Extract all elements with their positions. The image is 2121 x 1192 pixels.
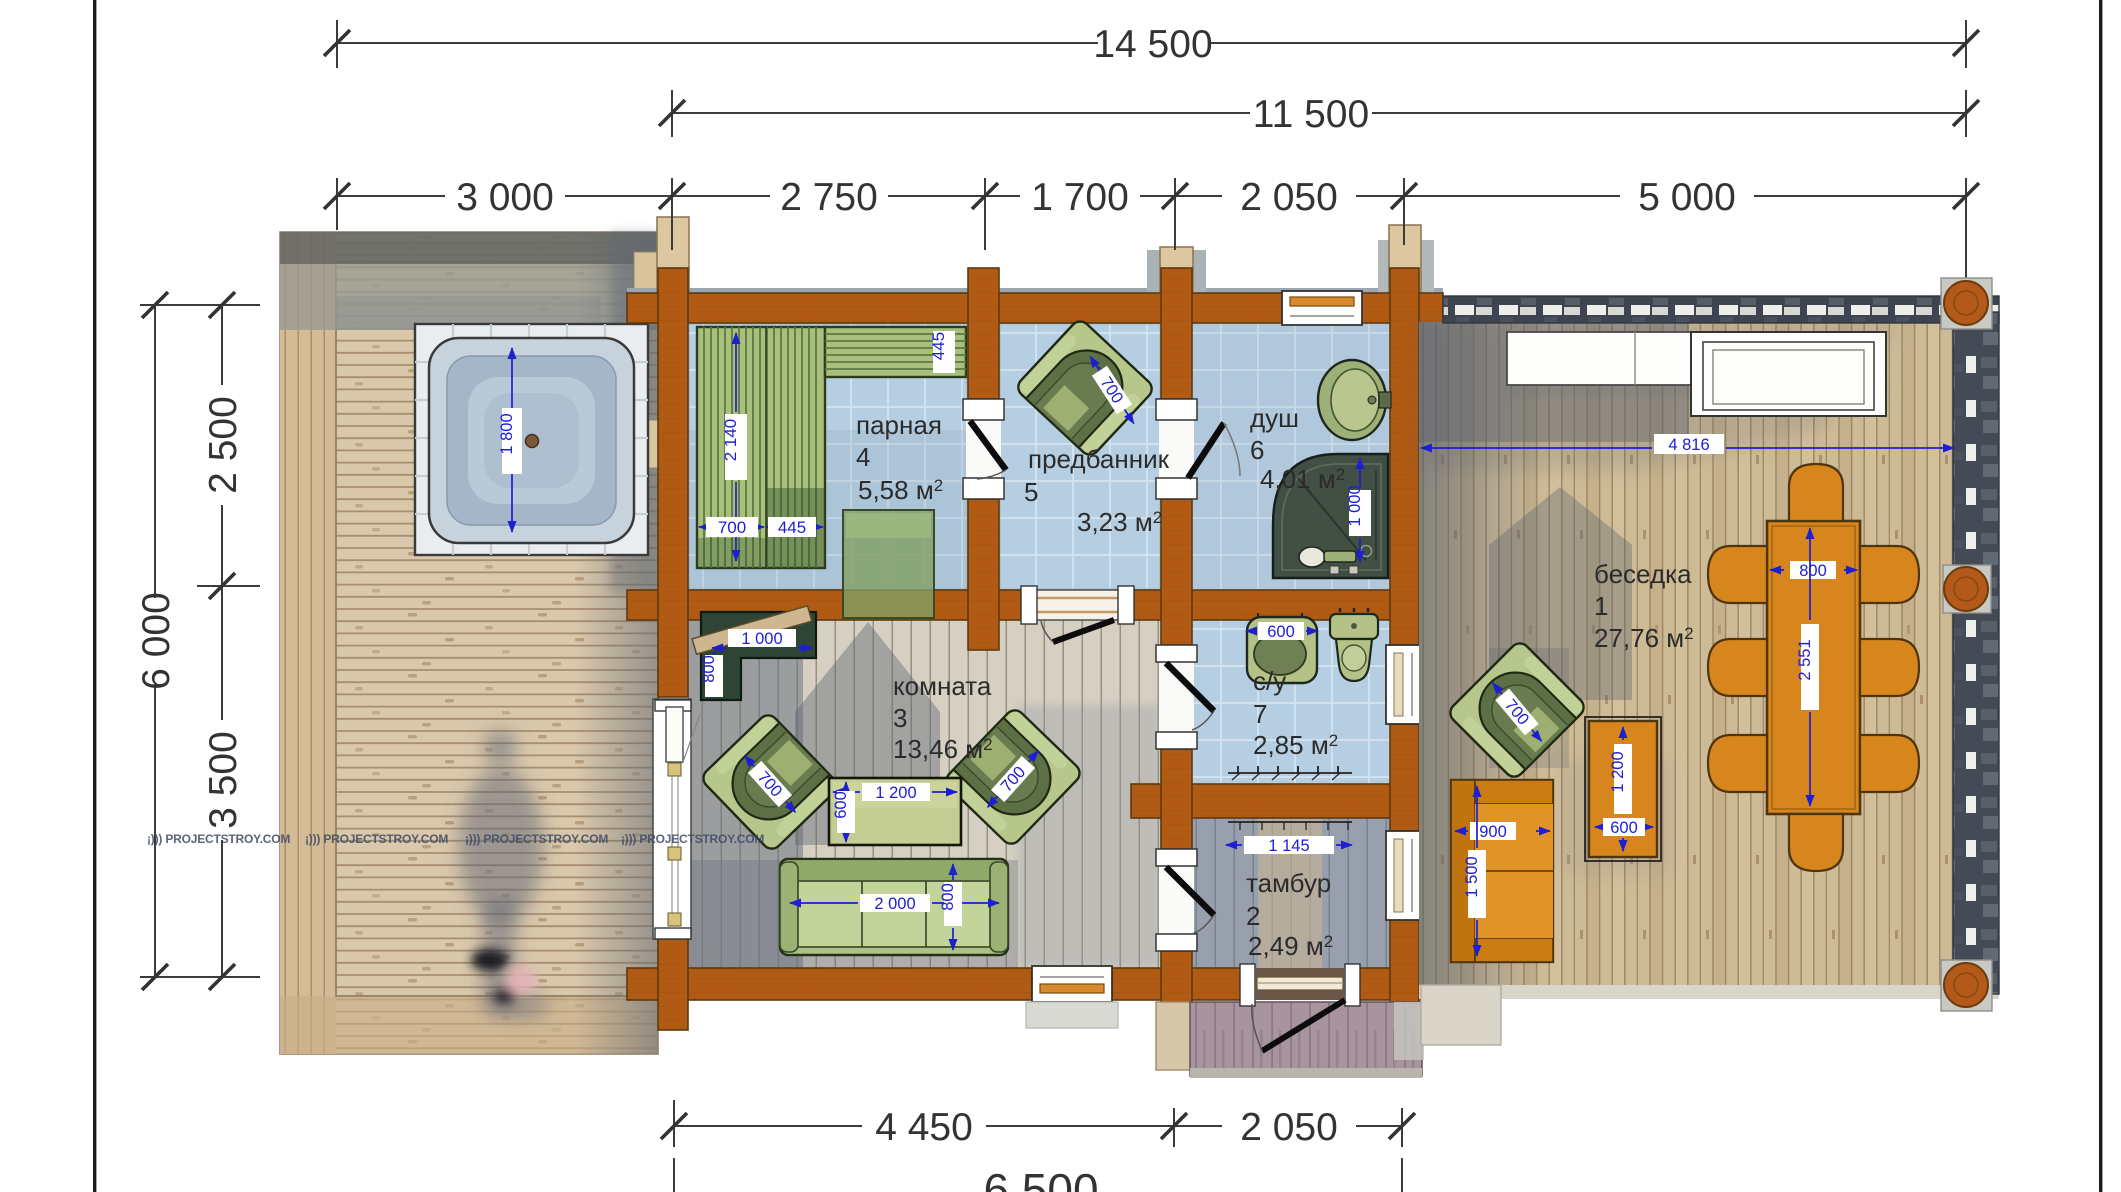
svg-text:800: 800 [939,883,957,911]
svg-text:27,76 м2: 27,76 м2 [1594,623,1694,653]
svg-text:2,85 м2: 2,85 м2 [1253,730,1338,760]
svg-text:4 816: 4 816 [1668,436,1709,454]
svg-text:6: 6 [1250,435,1264,465]
svg-text:13,46 м2: 13,46 м2 [893,734,993,764]
svg-text:5 000: 5 000 [1638,176,1736,219]
svg-text:комната: комната [893,671,992,701]
svg-text:1 145: 1 145 [1268,837,1309,855]
svg-text:4,01 м2: 4,01 м2 [1260,464,1345,494]
svg-text:1 200: 1 200 [1609,751,1627,792]
svg-text:предбанник: предбанник [1028,444,1170,474]
svg-text:5: 5 [1024,477,1038,507]
svg-text:2 551: 2 551 [1796,639,1814,680]
svg-text:тамбур: тамбур [1246,868,1331,898]
svg-text:беседка: беседка [1594,559,1692,589]
svg-text:1 700: 1 700 [1031,176,1129,219]
svg-text:2 000: 2 000 [874,895,915,913]
svg-text:¡))) PROJECTSTROY.COM: ¡))) PROJECTSTROY.COM [147,832,290,846]
svg-text:¡))) PROJECTSTROY.COM: ¡))) PROJECTSTROY.COM [621,832,764,846]
svg-text:445: 445 [929,332,948,360]
svg-text:1 000: 1 000 [1346,485,1364,526]
svg-text:7: 7 [1253,699,1267,729]
svg-text:800: 800 [700,655,718,683]
svg-text:4: 4 [856,442,870,472]
svg-text:11 500: 11 500 [1253,93,1369,136]
svg-text:3 000: 3 000 [456,176,554,219]
svg-text:600: 600 [1267,623,1295,641]
svg-text:¡))) PROJECTSTROY.COM: ¡))) PROJECTSTROY.COM [305,832,448,846]
svg-text:600: 600 [832,791,850,819]
svg-text:1 000: 1 000 [741,630,782,648]
svg-text:2 750: 2 750 [780,176,878,219]
svg-text:2 050: 2 050 [1240,176,1338,219]
svg-text:2: 2 [1246,901,1260,931]
svg-text:3,23 м2: 3,23 м2 [1077,507,1162,537]
svg-text:парная: парная [856,410,942,440]
svg-text:900: 900 [1479,823,1507,841]
svg-text:3 500: 3 500 [202,731,245,829]
svg-text:душ: душ [1250,403,1299,433]
svg-text:¡))) PROJECTSTROY.COM: ¡))) PROJECTSTROY.COM [465,832,608,846]
svg-text:700: 700 [718,518,746,537]
svg-text:2 500: 2 500 [202,396,245,494]
svg-text:1 500: 1 500 [1463,856,1481,897]
svg-text:1 800: 1 800 [498,413,516,454]
svg-text:2,49 м2: 2,49 м2 [1248,931,1333,961]
svg-text:3: 3 [893,703,907,733]
svg-text:14 500: 14 500 [1093,23,1212,66]
svg-text:5,58 м2: 5,58 м2 [858,475,943,505]
svg-text:445: 445 [778,518,806,537]
svg-text:1 200: 1 200 [875,784,916,802]
svg-text:4 450: 4 450 [875,1106,973,1149]
svg-text:600: 600 [1610,819,1638,837]
svg-text:800: 800 [1799,562,1827,580]
svg-text:2 140: 2 140 [721,419,740,462]
svg-text:6 500: 6 500 [983,1164,1098,1192]
svg-text:с/у: с/у [1253,666,1286,696]
svg-text:6 000: 6 000 [135,592,178,690]
svg-text:1: 1 [1594,591,1608,621]
svg-text:2 050: 2 050 [1240,1106,1338,1149]
